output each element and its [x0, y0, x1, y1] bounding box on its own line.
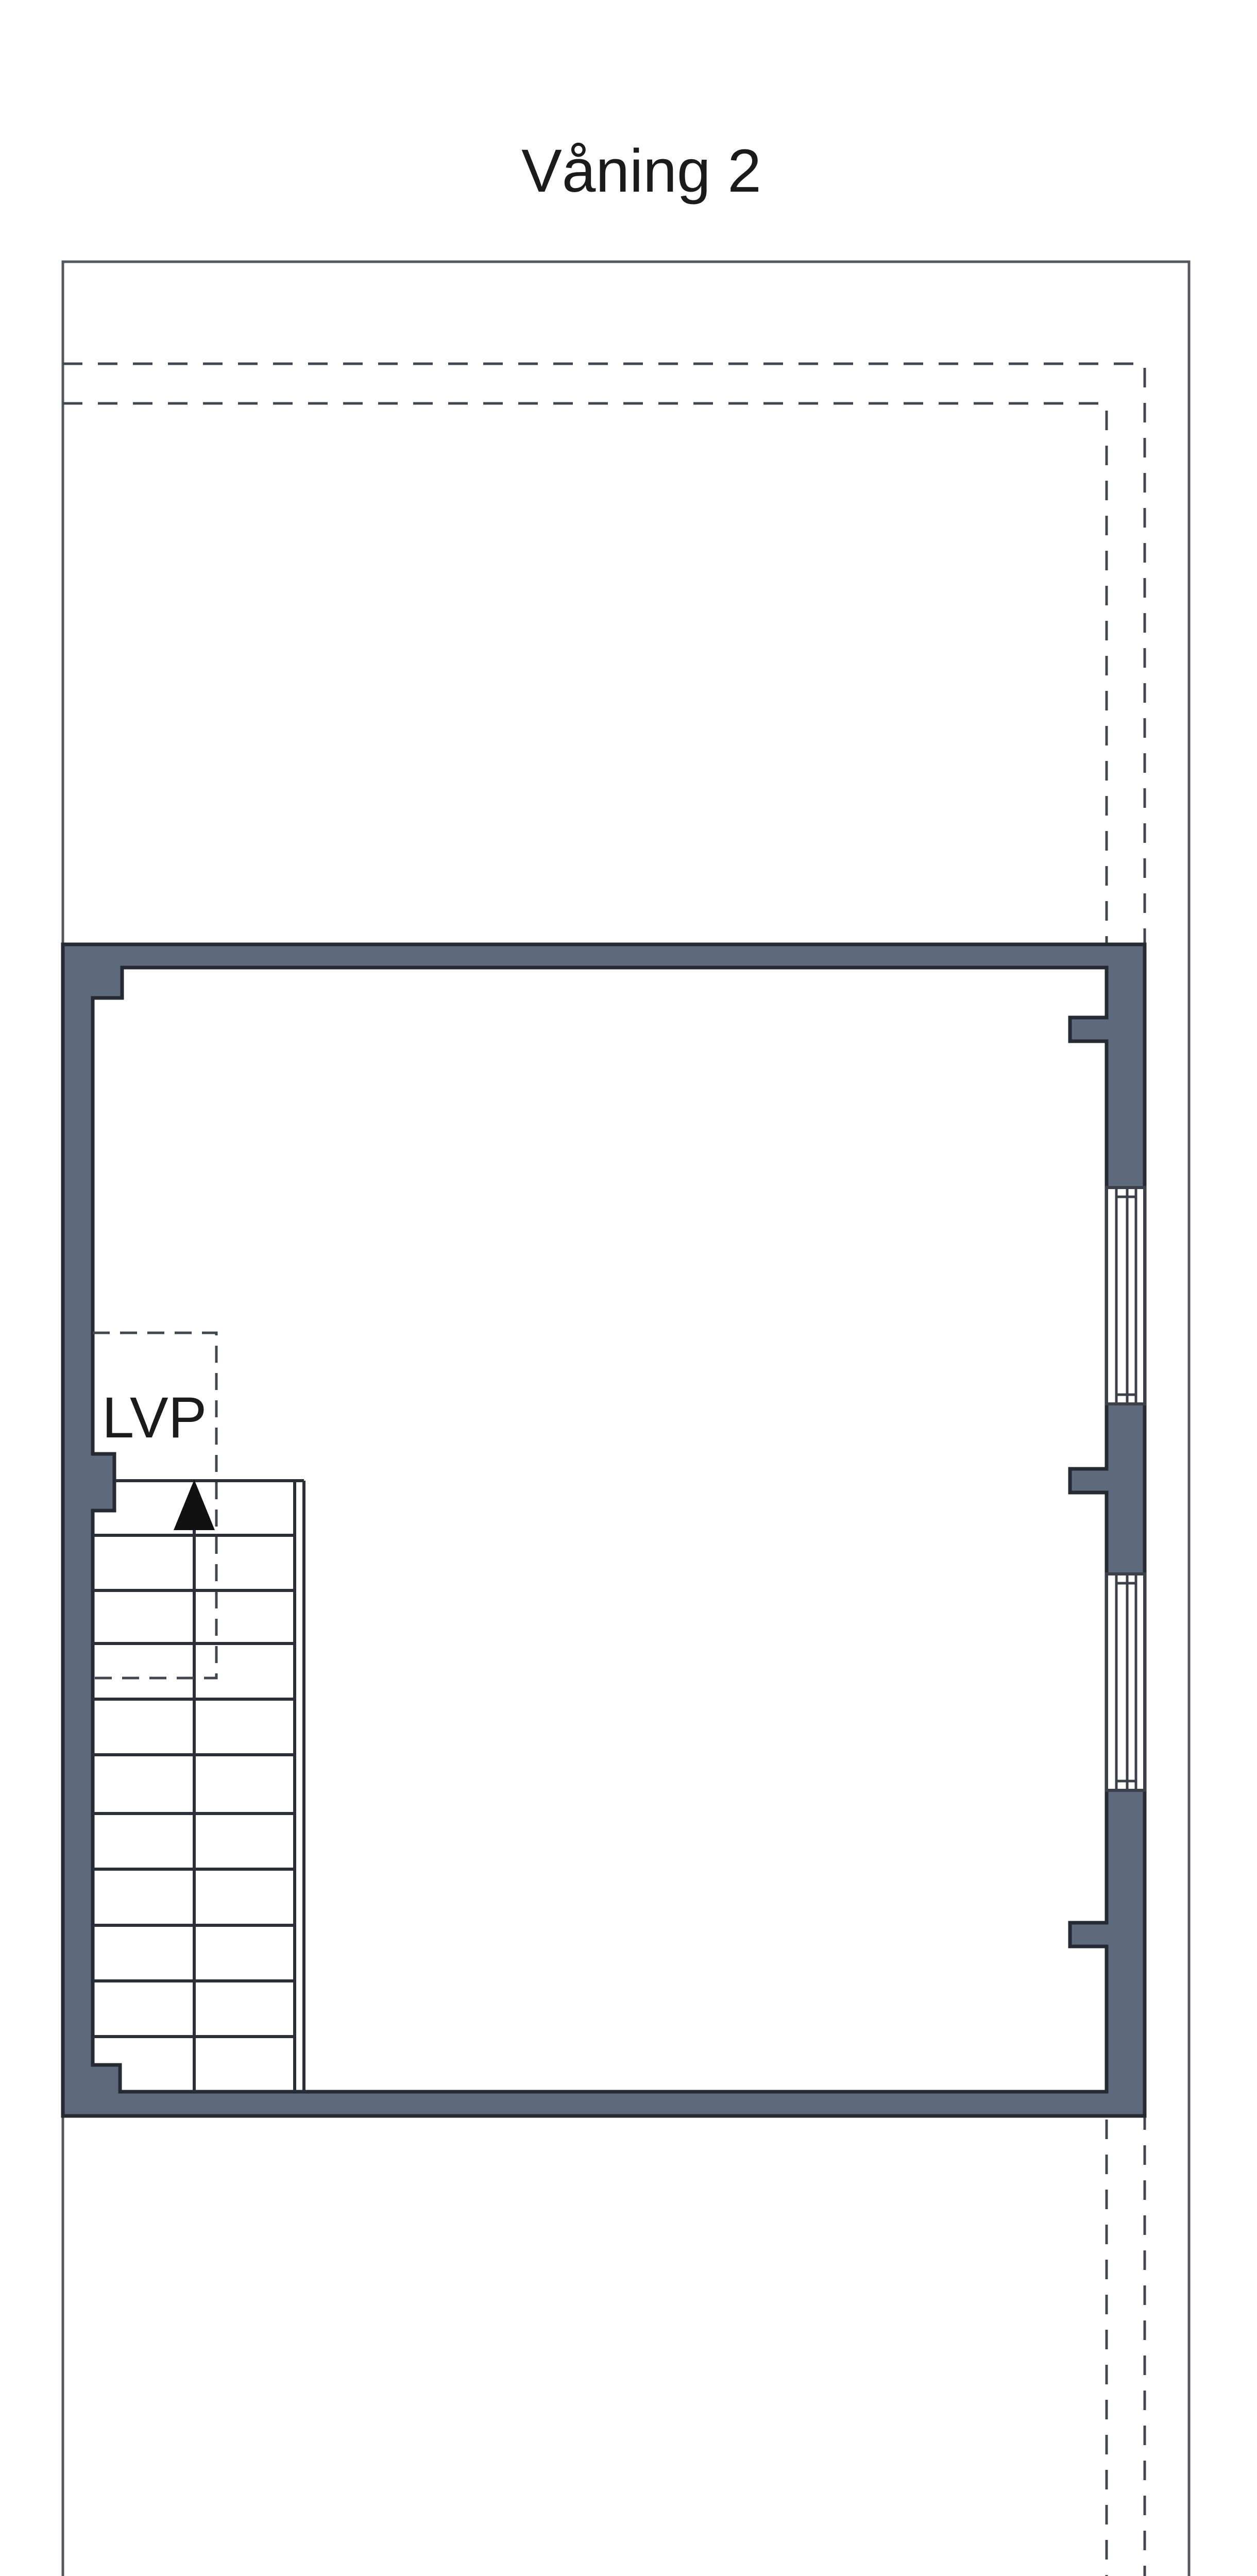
floor-plan-page: Våning 2 [0, 0, 1257, 2576]
outer-boundary [63, 262, 1189, 2576]
window-lower [1107, 1574, 1145, 1790]
window-opening [1107, 1574, 1145, 1790]
page-title: Våning 2 [521, 137, 761, 205]
window-upper [1107, 1188, 1145, 1404]
floor-plan: Våning 2 [0, 0, 1257, 2576]
lvp-label: LVP [102, 1385, 207, 1450]
window-opening [1107, 1188, 1145, 1404]
